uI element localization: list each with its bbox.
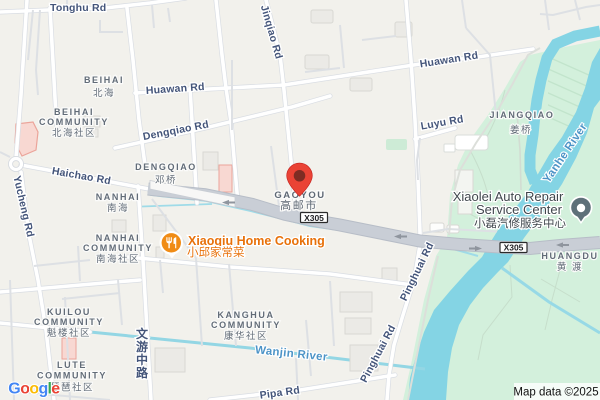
svg-text:Xiaoqiu Home Cooking: Xiaoqiu Home Cooking (188, 234, 325, 248)
svg-text:e: e (51, 381, 60, 398)
svg-text:南海社区: 南海社区 (96, 253, 140, 265)
svg-text:Service Center: Service Center (476, 202, 563, 217)
svg-text:COMMUNITY: COMMUNITY (37, 371, 107, 381)
svg-text:小邱家常菜: 小邱家常菜 (187, 245, 245, 259)
svg-text:LUTE: LUTE (57, 360, 87, 370)
svg-text:NANHAI: NANHAI (96, 192, 141, 202)
svg-text:COMMUNITY: COMMUNITY (39, 117, 109, 127)
svg-text:DENGQIAO: DENGQIAO (135, 162, 197, 172)
svg-text:BEIHAI: BEIHAI (54, 107, 94, 117)
svg-text:COMMUNITY: COMMUNITY (211, 320, 281, 330)
svg-text:KANGHUA: KANGHUA (217, 310, 274, 320)
svg-text:小磊汽修服务中心: 小磊汽修服务中心 (474, 216, 566, 230)
svg-text:北海社区: 北海社区 (52, 127, 96, 139)
svg-text:Map data ©2025: Map data ©2025 (513, 387, 598, 399)
svg-text:姜桥: 姜桥 (510, 124, 532, 136)
svg-text:中: 中 (136, 352, 148, 367)
svg-text:路: 路 (136, 365, 149, 380)
svg-text:JIANGQIAO: JIANGQIAO (490, 110, 555, 120)
svg-text:南海: 南海 (107, 202, 129, 214)
svg-text:高邮市: 高邮市 (280, 198, 318, 212)
svg-text:文: 文 (136, 326, 149, 341)
svg-text:康华社区: 康华社区 (224, 330, 268, 342)
svg-text:游: 游 (136, 339, 148, 354)
svg-text:Tonghu Rd: Tonghu Rd (50, 2, 106, 14)
svg-text:BEIHAI: BEIHAI (84, 75, 124, 85)
svg-text:HUANGDU: HUANGDU (541, 251, 598, 261)
svg-text:NANHAI: NANHAI (96, 233, 141, 243)
svg-text:COMMUNITY: COMMUNITY (83, 243, 153, 253)
svg-text:黄 渡: 黄 渡 (557, 261, 583, 273)
svg-text:X305: X305 (304, 213, 324, 223)
svg-text:COMMUNITY: COMMUNITY (34, 317, 104, 327)
svg-text:邓桥: 邓桥 (155, 174, 177, 186)
svg-text:KUILOU: KUILOU (47, 307, 91, 317)
svg-text:魁楼社区: 魁楼社区 (47, 327, 91, 339)
svg-text:X305: X305 (504, 243, 524, 253)
svg-text:G: G (8, 381, 20, 398)
svg-text:北海: 北海 (93, 87, 115, 99)
